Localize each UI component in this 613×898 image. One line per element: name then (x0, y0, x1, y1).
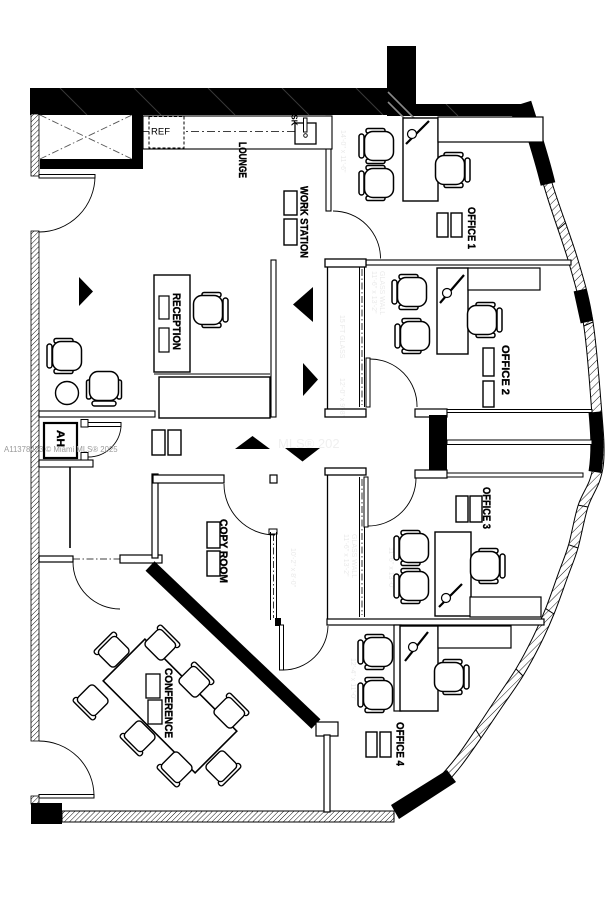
svg-text:GLASS WALL: GLASS WALL (378, 271, 385, 315)
svg-text:OFFICE 3: OFFICE 3 (480, 487, 492, 529)
svg-text:COPY ROOM: COPY ROOM (217, 519, 229, 583)
svg-text:12'-0" x 9'-8": 12'-0" x 9'-8" (338, 378, 345, 418)
svg-text:OFFICE 1: OFFICE 1 (465, 207, 477, 249)
svg-text:SK: SK (290, 114, 300, 127)
svg-text:CONFERENCE: CONFERENCE (162, 668, 174, 738)
svg-text:11'-6" x 13'-2": 11'-6" x 13'-2" (342, 534, 349, 577)
svg-text:11'-6" x 13'-2": 11'-6" x 13'-2" (370, 271, 377, 314)
svg-text:REF: REF (151, 127, 170, 138)
svg-text:14'-0" x 11'-6": 14'-0" x 11'-6" (339, 130, 346, 173)
svg-text:12'-4" x 11'-0": 12'-4" x 11'-0" (349, 658, 356, 701)
svg-text:MLS® 202: MLS® 202 (278, 436, 340, 451)
svg-text:15 FT GLASS: 15 FT GLASS (338, 315, 345, 359)
svg-text:11'-6" x 13'-0": 11'-6" x 13'-0" (387, 547, 394, 590)
svg-text:LOUNGE: LOUNGE (236, 142, 248, 178)
svg-text:RECEPTION: RECEPTION (170, 293, 182, 350)
svg-text:GLASS WALL: GLASS WALL (350, 534, 357, 578)
svg-text:10'-2" x 8'-0": 10'-2" x 8'-0" (289, 548, 296, 588)
svg-text:A11378423 © Miami MLS® 2025: A11378423 © Miami MLS® 2025 (4, 445, 118, 454)
svg-text:WORK STATION: WORK STATION (298, 186, 310, 258)
svg-text:OFFICE 4: OFFICE 4 (394, 722, 406, 767)
svg-text:OFFICE 2: OFFICE 2 (499, 345, 511, 395)
